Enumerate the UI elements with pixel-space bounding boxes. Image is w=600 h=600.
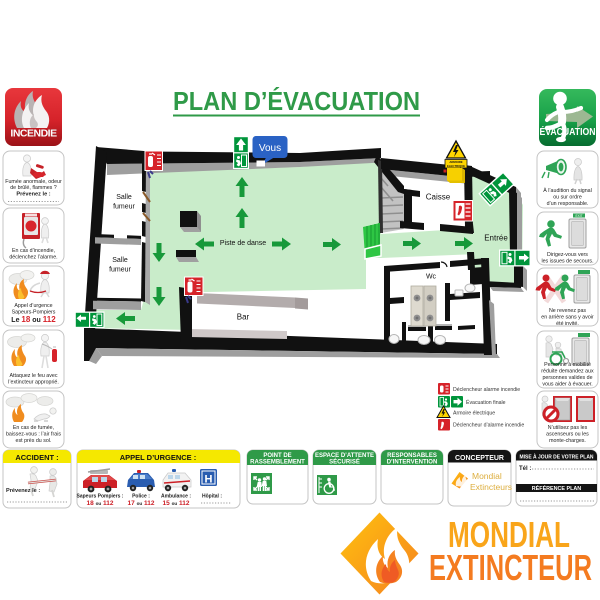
svg-text:D’INTERVENTION: D’INTERVENTION: [387, 460, 438, 466]
svg-text:en arrière sans y avoir: en arrière sans y avoir: [541, 315, 594, 321]
svg-text:Caisse: Caisse: [426, 193, 451, 202]
svg-text:Déclencheur alarme incendie: Déclencheur alarme incendie: [453, 387, 520, 393]
svg-text:Déclencheur d’alarme incendie: Déclencheur d’alarme incendie: [453, 423, 524, 429]
svg-text:ESPACE D’ATTENTE: ESPACE D’ATTENTE: [315, 453, 374, 459]
svg-text:de brûlé, flammes ?: de brûlé, flammes ?: [10, 185, 57, 191]
svg-text:Bar: Bar: [237, 313, 250, 322]
svg-text:Piste de danse: Piste de danse: [220, 240, 266, 247]
svg-text:À l’audition du signal: À l’audition du signal: [543, 187, 592, 194]
svg-text:Prévenez le :: Prévenez le :: [16, 192, 50, 198]
svg-text:APPEL D’URGENCE :: APPEL D’URGENCE :: [120, 453, 197, 462]
svg-text:RESPONSABLES: RESPONSABLES: [387, 453, 437, 459]
svg-text:En cas d’incendie,: En cas d’incendie,: [12, 248, 55, 254]
svg-text:été invité.: été invité.: [556, 321, 579, 327]
svg-text:Ambulance :: Ambulance :: [161, 494, 191, 500]
svg-text:H: H: [205, 474, 213, 486]
svg-text:l’extincteur approprié.: l’extincteur approprié.: [8, 380, 59, 386]
svg-text:Évacuation finale: Évacuation finale: [466, 399, 506, 406]
svg-text:monte-charges.: monte-charges.: [549, 438, 586, 444]
svg-text:réduite demandez aux: réduite demandez aux: [541, 369, 594, 375]
svg-text:baissez-vous : l’air frais: baissez-vous : l’air frais: [6, 432, 61, 438]
svg-text:PLAN D’ÉVACUATION: PLAN D’ÉVACUATION: [173, 86, 420, 116]
svg-text:SÉCURISÉ: SÉCURISÉ: [329, 458, 360, 466]
svg-text:les issues de secours.: les issues de secours.: [541, 259, 593, 265]
svg-text:Mondial: Mondial: [472, 471, 502, 481]
svg-text:ou sur ordre: ou sur ordre: [553, 195, 582, 201]
svg-text:Salle: Salle: [116, 194, 132, 201]
svg-text:RASSEMBLEMENT: RASSEMBLEMENT: [250, 460, 305, 466]
svg-text:RÉFÉRENCE PLAN: RÉFÉRENCE PLAN: [532, 484, 582, 492]
svg-text:Appel d’urgence: Appel d’urgence: [14, 303, 52, 309]
svg-text:fumeur: fumeur: [109, 267, 131, 274]
svg-text:MISE À JOUR DE VOTRE PLAN: MISE À JOUR DE VOTRE PLAN: [520, 454, 594, 461]
svg-text:Attaquez le feu avec: Attaquez le feu avec: [10, 373, 58, 379]
svg-text:En cas de fumée,: En cas de fumée,: [13, 425, 54, 431]
svg-text:CONCEPTEUR: CONCEPTEUR: [455, 455, 504, 462]
svg-text:17 ou 112: 17 ou 112: [128, 500, 155, 507]
svg-text:ÉVACUATION: ÉVACUATION: [540, 125, 596, 138]
svg-text:ELECTRIQUE: ELECTRIQUE: [447, 164, 465, 168]
svg-text:Personne à mobilité: Personne à mobilité: [544, 362, 591, 368]
svg-text:18 ou 112: 18 ou 112: [87, 500, 114, 507]
svg-text:Police :: Police :: [132, 494, 150, 500]
svg-text:EXTINCTEUR: EXTINCTEUR: [429, 547, 592, 588]
svg-text:est près du sol.: est près du sol.: [16, 438, 52, 444]
svg-text:Armoire électrique: Armoire électrique: [453, 411, 495, 417]
svg-text:Salle: Salle: [112, 257, 128, 264]
svg-text:Entrée: Entrée: [484, 234, 508, 243]
svg-text:d’un responsable.: d’un responsable.: [547, 201, 589, 207]
svg-text:N’utilisez pas les: N’utilisez pas les: [548, 425, 588, 431]
svg-text:Sapeurs Pompiers :: Sapeurs Pompiers :: [77, 494, 124, 500]
svg-text:vous aider à évacuer.: vous aider à évacuer.: [542, 382, 592, 388]
svg-text:Wc: Wc: [426, 274, 437, 281]
svg-text:POINT DE: POINT DE: [263, 453, 291, 459]
svg-text:15 ou 112: 15 ou 112: [163, 500, 190, 507]
svg-text:Vous: Vous: [259, 143, 281, 154]
svg-text:Extincteurs: Extincteurs: [470, 482, 512, 492]
svg-text:déclenchez l’alarme.: déclenchez l’alarme.: [9, 255, 57, 261]
svg-text:Tél :: Tél :: [519, 466, 531, 472]
svg-text:ascenseurs ou les: ascenseurs ou les: [546, 432, 589, 438]
svg-text:EXIT: EXIT: [575, 214, 582, 218]
svg-text:personnes valides de: personnes valides de: [542, 375, 592, 381]
svg-text:Dirigez-vous vers: Dirigez-vous vers: [547, 252, 588, 258]
svg-text:Prévenez le :: Prévenez le :: [6, 488, 40, 494]
svg-text:fumeur: fumeur: [113, 204, 135, 211]
svg-text:INCENDIE: INCENDIE: [10, 128, 57, 140]
svg-text:Le 18 ou 112: Le 18 ou 112: [11, 315, 56, 324]
svg-text:Hôpital :: Hôpital :: [202, 494, 222, 500]
svg-text:Ne revenez pas: Ne revenez pas: [549, 308, 586, 314]
svg-text:ACCIDENT :: ACCIDENT :: [15, 453, 58, 462]
